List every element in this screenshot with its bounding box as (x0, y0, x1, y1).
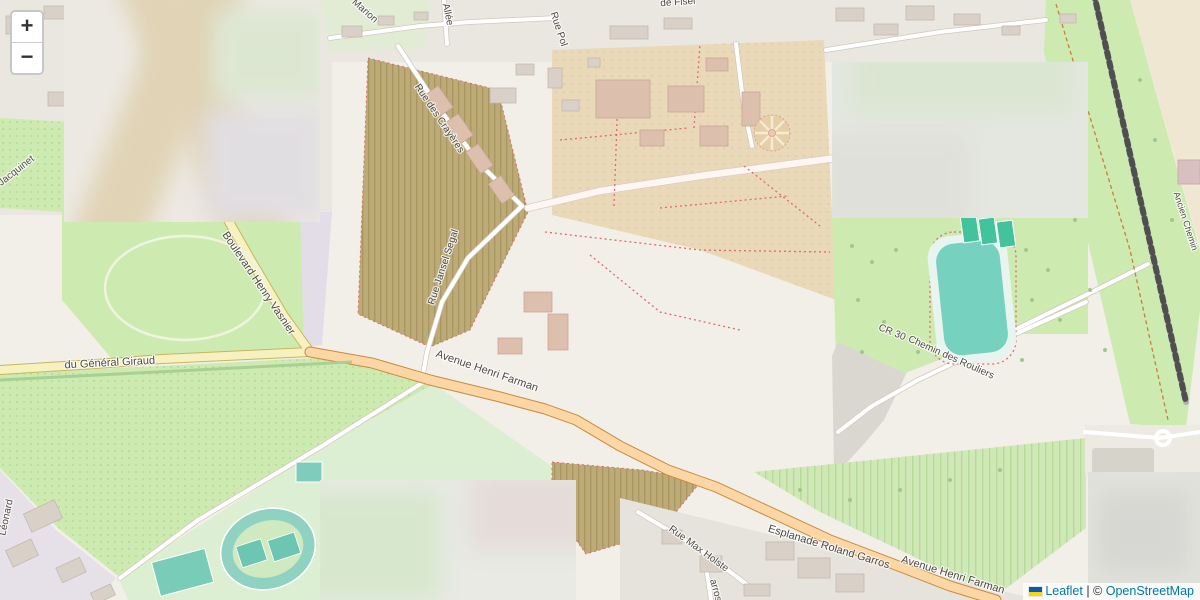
openstreetmap-link[interactable]: OpenStreetMap (1106, 584, 1194, 598)
zoom-out-button[interactable]: − (12, 43, 42, 73)
blurred-tile-top-left (64, 0, 320, 222)
attribution-bar: Leaflet | © OpenStreetMap (1023, 583, 1200, 600)
ukraine-flag-icon (1029, 587, 1042, 596)
attribution-separator: | (1083, 584, 1093, 598)
circular-plaza (754, 115, 790, 151)
blurred-tile-bottom-right (1088, 472, 1200, 600)
zoom-control: + − (10, 10, 44, 75)
leaflet-link[interactable]: Leaflet (1045, 584, 1083, 598)
blurred-tile-right (832, 62, 1088, 218)
map-canvas[interactable]: MarionAlléede FiselRue PolRue des Crayèr… (0, 0, 1200, 600)
blurred-tile-bottom-center (320, 480, 576, 600)
zoom-in-button[interactable]: + (12, 12, 42, 43)
attribution-copyright-symbol: © (1093, 584, 1102, 598)
